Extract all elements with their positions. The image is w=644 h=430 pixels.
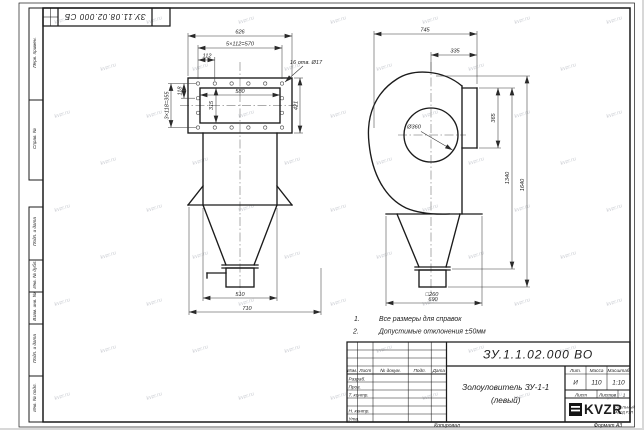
tb-mass-value: 110 — [591, 380, 602, 387]
watermark-text: kvzr.ru — [514, 203, 531, 214]
watermark-text: kvzr.ru — [606, 15, 623, 26]
watermark-text: kvzr.ru — [376, 156, 393, 167]
watermark-layer: kvzr.rukvzr.rukvzr.rukvzr.rukvzr.rukvzr.… — [54, 15, 644, 402]
side-extension-lines — [374, 31, 530, 306]
copied-label: Копировал — [434, 423, 460, 429]
kvzr-logo-icon — [569, 403, 582, 416]
note-text: Допустимые отклонения ±50мм — [378, 329, 486, 336]
margin-label: Перв. примен. — [32, 37, 37, 68]
side-view: 745 335 Ø360 365 1340 1640 □260 690 — [368, 28, 530, 307]
watermark-text: kvzr.ru — [192, 344, 209, 355]
title-block: Изм. Лист № докум. Подп. Дата Разраб. Пр… — [347, 342, 636, 422]
watermark-text: kvzr.ru — [146, 297, 163, 308]
watermark-text: kvzr.ru — [422, 391, 439, 402]
front-extension-lines — [168, 33, 321, 315]
watermark-text: kvzr.ru — [330, 15, 347, 26]
watermark-text: kvzr.ru — [146, 391, 163, 402]
watermark-text: kvzr.ru — [468, 62, 485, 73]
dim-side-flange-height: 365 — [491, 112, 497, 122]
dim-front-opening-width: 580 — [235, 89, 245, 95]
format-label: Формат А3 — [594, 423, 622, 429]
watermark-text: kvzr.ru — [54, 391, 71, 402]
note-number: 1. — [354, 316, 360, 323]
watermark-text: kvzr.ru — [560, 156, 577, 167]
margin-label: Инв. № подл. — [32, 383, 37, 412]
footer: Копировал Формат А3 — [434, 423, 622, 429]
margin-label: Взам. инв. № — [32, 292, 37, 320]
watermark-text: kvzr.ru — [192, 250, 209, 261]
watermark-text: kvzr.ru — [238, 15, 255, 26]
margin-label: Подп. и дата — [32, 217, 37, 246]
dim-front-outlet: 510 — [235, 292, 245, 298]
watermark-text: kvzr.ru — [376, 250, 393, 261]
tb-sheet-label: Лист — [574, 392, 587, 397]
watermark-text: kvzr.ru — [606, 297, 623, 308]
tb-doc-number: ЗУ.1.1.02.000 ВО — [483, 348, 593, 362]
note-text: Все размеры для справок — [379, 315, 462, 323]
tb-lit-value: И — [573, 380, 578, 387]
dim-front-hole-pitch: 112 — [203, 54, 213, 60]
watermark-text: kvzr.ru — [100, 250, 117, 261]
front-holes-note: 16 отв. Ø17 — [290, 60, 323, 66]
watermark-text: kvzr.ru — [330, 391, 347, 402]
watermark-text: kvzr.ru — [514, 297, 531, 308]
watermark-text: kvzr.ru — [100, 62, 117, 73]
side-dimension-lines — [374, 34, 527, 303]
dim-side-height-flange: 1340 — [505, 171, 511, 184]
watermark-text: kvzr.ru — [146, 109, 163, 120]
watermark-text: kvzr.ru — [146, 15, 163, 26]
note-number: 2. — [352, 329, 359, 336]
dim-front-side-span: 3×118=355 — [165, 91, 171, 120]
dim-side-base: 690 — [428, 297, 438, 303]
watermark-text: kvzr.ru — [422, 15, 439, 26]
kvzr-tagline: КОТЕЛЬНЫЙ — [613, 406, 636, 410]
dim-front-flange-height: 421 — [293, 101, 299, 110]
tb-header-cell: Изм. — [347, 368, 357, 373]
watermark-text: kvzr.ru — [606, 203, 623, 214]
watermark-text: kvzr.ru — [54, 203, 71, 214]
watermark-text: kvzr.ru — [100, 344, 117, 355]
dim-front-base: 710 — [242, 306, 252, 312]
tb-header-cell: № докум. — [380, 368, 401, 373]
tb-product-name: Золоуловитель ЗУ-1-1 — [462, 383, 549, 392]
watermark-text: kvzr.ru — [560, 250, 577, 261]
watermark-text: kvzr.ru — [54, 297, 71, 308]
tb-row-label: Утв. — [349, 416, 360, 421]
tb-header-cell: Подп. — [413, 368, 425, 373]
margin-label: Подп. и дата — [32, 334, 37, 363]
tb-mass-label: Масса — [590, 368, 604, 373]
tb-scale-value: 1:10 — [612, 380, 625, 387]
tb-product-variant: (левый) — [491, 396, 521, 405]
watermark-text: kvzr.ru — [330, 203, 347, 214]
watermark-text: kvzr.ru — [468, 156, 485, 167]
kvzr-logo: KVZR КОТЕЛЬНЫЙ ЗАВОД РЭП — [569, 402, 636, 417]
watermark-text: kvzr.ru — [54, 109, 71, 120]
watermark-text: kvzr.ru — [192, 156, 209, 167]
notes: 1. Все размеры для справок 2. Допустимые… — [352, 315, 486, 336]
watermark-text: kvzr.ru — [284, 344, 301, 355]
margin-column: Перв. примен. Справ. № Подп. и дата Инв.… — [29, 8, 43, 422]
watermark-text: kvzr.ru — [376, 62, 393, 73]
watermark-text: kvzr.ru — [606, 109, 623, 120]
dim-side-inlet: 335 — [450, 49, 460, 55]
kvzr-logo-text: KVZR — [584, 402, 622, 417]
tb-scale-label: Масштаб — [608, 368, 630, 373]
tb-sheets-label: Листов — [598, 392, 617, 397]
dim-side-height-total: 1640 — [520, 178, 526, 191]
watermark-text: kvzr.ru — [422, 109, 439, 120]
dim-side-diameter: Ø360 — [406, 125, 422, 131]
tb-lit-label: Лит. — [569, 368, 581, 373]
tb-header-cell: Дата — [432, 368, 446, 373]
dim-front-opening-height: 315 — [209, 100, 215, 110]
margin-label: Инв. № дубл. — [32, 260, 37, 288]
tb-row-label: Пров. — [349, 384, 361, 389]
watermark-text: kvzr.ru — [560, 62, 577, 73]
drawing-canvas: kvzr.rukvzr.rukvzr.rukvzr.rukvzr.rukvzr.… — [0, 0, 644, 430]
watermark-text: kvzr.ru — [514, 109, 531, 120]
watermark-text: kvzr.ru — [330, 297, 347, 308]
watermark-text: kvzr.ru — [146, 203, 163, 214]
tb-header-cell: Лист — [358, 368, 371, 373]
tb-sheets-value: 1 — [623, 392, 626, 397]
watermark-text: kvzr.ru — [514, 15, 531, 26]
dim-front-side-pitch: 118 — [178, 86, 184, 96]
dim-front-width: 626 — [235, 30, 245, 36]
front-view: 626 5×112=570 112 16 отв. Ø17 118 3×118=… — [165, 30, 323, 316]
watermark-text: kvzr.ru — [376, 344, 393, 355]
kvzr-tagline: ЗАВОД РЭП — [613, 411, 634, 415]
dim-side-width: 745 — [420, 28, 430, 34]
watermark-text: kvzr.ru — [284, 156, 301, 167]
watermark-text: kvzr.ru — [238, 391, 255, 402]
watermark-text: kvzr.ru — [192, 62, 209, 73]
watermark-text: kvzr.ru — [284, 250, 301, 261]
tb-row-label: Т. контр. — [349, 392, 369, 397]
corner-doc-number: ЗУ.11.08.02.000 СБ — [64, 12, 145, 21]
dim-front-hole-span: 5×112=570 — [226, 42, 255, 48]
watermark-text: kvzr.ru — [330, 109, 347, 120]
watermark-text: kvzr.ru — [100, 156, 117, 167]
drawing-sheet: kvzr.rukvzr.rukvzr.rukvzr.rukvzr.rukvzr.… — [0, 0, 644, 430]
watermark-text: kvzr.ru — [238, 109, 255, 120]
margin-label: Справ. № — [32, 128, 37, 149]
tb-row-label: Н. контр. — [349, 408, 370, 413]
tb-row-label: Разраб. — [349, 376, 366, 381]
